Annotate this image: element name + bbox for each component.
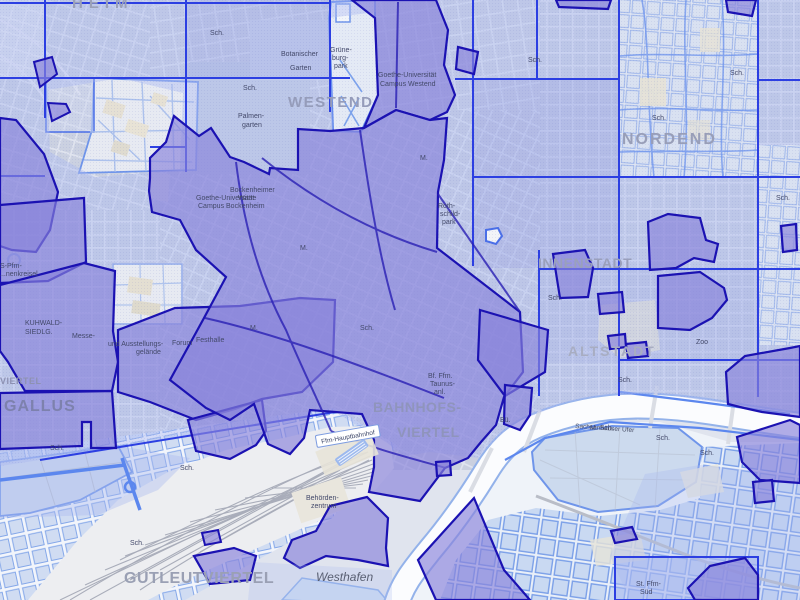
svg-text:Sch.: Sch.: [548, 295, 562, 302]
svg-text:BAHNHOFS-: BAHNHOFS-: [373, 399, 462, 415]
svg-text:Campus Westend: Campus Westend: [380, 81, 436, 88]
svg-text:Sch.: Sch.: [656, 435, 670, 442]
svg-text:Sch.: Sch.: [618, 377, 632, 384]
svg-text:Grüne-: Grüne-: [330, 47, 352, 54]
svg-text:burg-: burg-: [332, 55, 349, 62]
svg-text:GALLUS: GALLUS: [4, 398, 76, 415]
svg-text:Sch.: Sch.: [50, 445, 64, 452]
svg-text:schild-: schild-: [440, 211, 461, 218]
svg-text:M. Sch.: M. Sch.: [590, 425, 614, 432]
svg-text:GUTLEUTVIERTEL: GUTLEUTVIERTEL: [124, 570, 274, 587]
svg-text:Taunus-: Taunus-: [430, 381, 456, 388]
svg-text:VIERTEL: VIERTEL: [0, 376, 42, 386]
svg-text:VIERTEL: VIERTEL: [397, 424, 460, 440]
svg-text:Forum: Forum: [172, 340, 192, 347]
svg-text:Sch.: Sch.: [130, 540, 144, 547]
svg-text:Bockenheimer: Bockenheimer: [230, 187, 275, 194]
svg-text:Sch.: Sch.: [210, 30, 224, 37]
svg-text:und Ausstellungs-: und Ausstellungs-: [108, 341, 164, 348]
svg-text:Sch.: Sch.: [730, 70, 744, 77]
svg-text:garten: garten: [242, 122, 262, 129]
svg-text:Westhafen: Westhafen: [316, 570, 373, 584]
svg-text:INNENSTADT: INNENSTADT: [538, 255, 632, 271]
svg-text:Roth-: Roth-: [438, 203, 456, 210]
svg-text:ALTSTADT: ALTSTADT: [568, 343, 656, 359]
svg-text:NORDEND: NORDEND: [622, 131, 717, 148]
svg-text:WESTEND: WESTEND: [288, 94, 374, 111]
svg-text:Sch.: Sch.: [652, 115, 666, 122]
svg-text:Goethe-Universität: Goethe-Universität: [378, 72, 436, 79]
svg-text:park: park: [334, 63, 348, 70]
svg-text:Behörden-: Behörden-: [306, 495, 339, 502]
svg-text:Garten: Garten: [290, 65, 312, 72]
svg-text:Sch.: Sch.: [360, 325, 374, 332]
svg-text:park: park: [442, 219, 456, 226]
svg-text:Sch.: Sch.: [243, 85, 257, 92]
svg-text:Sch.: Sch.: [180, 465, 194, 472]
svg-text:zentrum: zentrum: [311, 503, 336, 510]
svg-text:Palmen-: Palmen-: [238, 113, 265, 120]
svg-text:St. Ffm-: St. Ffm-: [636, 581, 662, 588]
svg-text:SIEDLG.: SIEDLG.: [25, 329, 53, 336]
svg-text:Bf. Ffm.: Bf. Ffm.: [428, 373, 453, 380]
svg-text:Botanischer: Botanischer: [281, 51, 319, 58]
svg-text:Messe-: Messe-: [72, 333, 96, 340]
svg-text:gelände: gelände: [136, 349, 161, 356]
svg-text:Sch.: Sch.: [776, 195, 790, 202]
svg-text:Bü.: Bü.: [500, 417, 511, 424]
svg-text:Warte: Warte: [238, 195, 257, 202]
svg-text:...nenkreisel: ...nenkreisel: [0, 271, 38, 278]
svg-text:Festhalle: Festhalle: [196, 337, 225, 344]
svg-text:Sch.: Sch.: [700, 450, 714, 457]
svg-text:HEIM: HEIM: [72, 0, 134, 12]
svg-text:KUHWALD-: KUHWALD-: [25, 320, 63, 327]
svg-text:anl.: anl.: [434, 389, 445, 396]
svg-text:Sch.: Sch.: [528, 57, 542, 64]
svg-text:S-Pfm-: S-Pfm-: [0, 263, 22, 270]
svg-text:M.: M.: [300, 245, 308, 252]
svg-text:Campus Bockenheim: Campus Bockenheim: [198, 203, 265, 210]
svg-text:M.: M.: [420, 155, 428, 162]
svg-text:Zoo: Zoo: [696, 339, 708, 346]
svg-text:Süd: Süd: [640, 589, 653, 596]
svg-text:M.: M.: [250, 325, 258, 332]
